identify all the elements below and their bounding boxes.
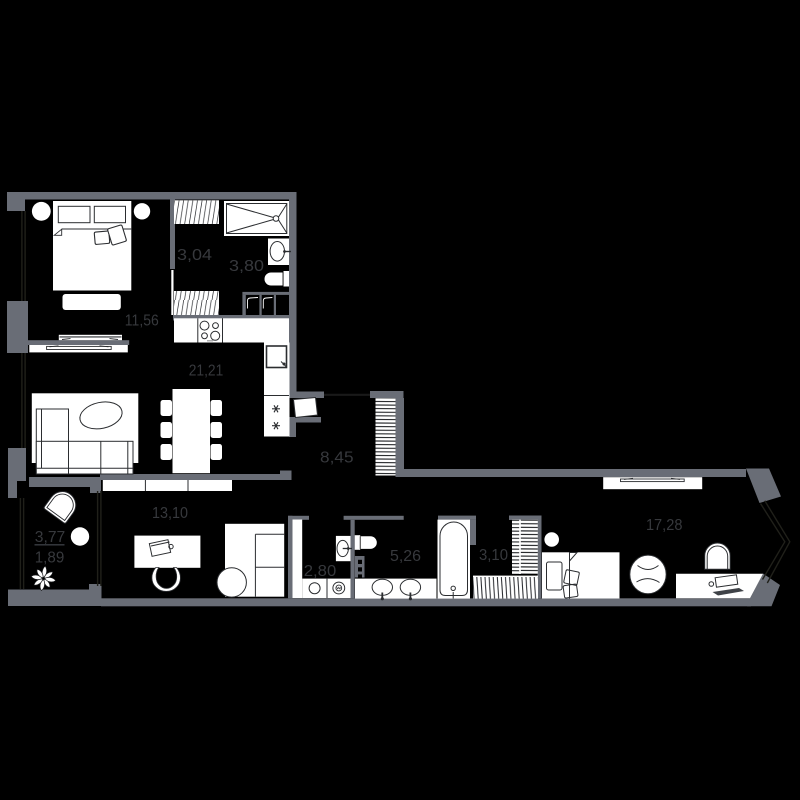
svg-text:3,77: 3,77 <box>35 529 66 546</box>
svg-text:13,10: 13,10 <box>152 505 188 522</box>
svg-text:17,28: 17,28 <box>646 517 683 534</box>
svg-text:11,56: 11,56 <box>125 312 159 329</box>
svg-text:8,45: 8,45 <box>320 450 354 467</box>
svg-text:21,21: 21,21 <box>189 363 224 380</box>
svg-text:2,80: 2,80 <box>304 563 337 580</box>
svg-text:1,89: 1,89 <box>35 550 65 567</box>
svg-text:5,26: 5,26 <box>390 548 421 565</box>
svg-text:3,04: 3,04 <box>177 247 212 264</box>
svg-text:3,10: 3,10 <box>479 547 508 564</box>
svg-text:3,80: 3,80 <box>229 258 264 275</box>
